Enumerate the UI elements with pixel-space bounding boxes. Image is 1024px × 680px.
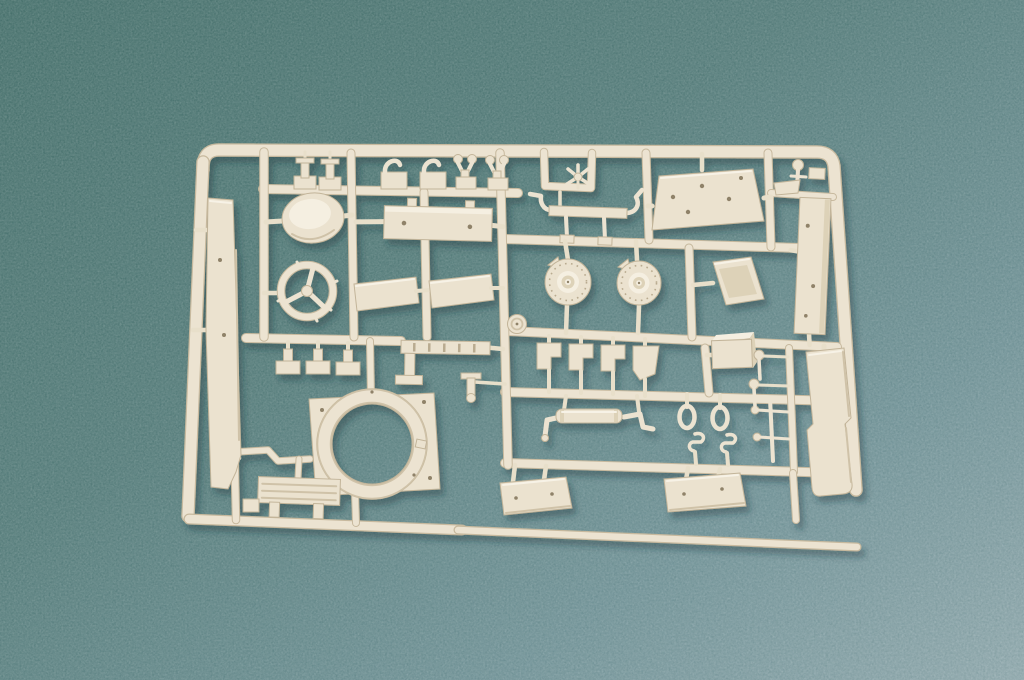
small-block-bottom-left <box>243 499 259 512</box>
stepped-panel <box>806 346 852 496</box>
felt-texture-dark <box>0 0 1024 680</box>
photo-stage <box>0 0 1024 680</box>
t-brackets <box>276 342 360 375</box>
gate-disc <box>508 315 527 334</box>
box-part <box>707 332 757 369</box>
sprue-photo <box>0 0 1024 680</box>
